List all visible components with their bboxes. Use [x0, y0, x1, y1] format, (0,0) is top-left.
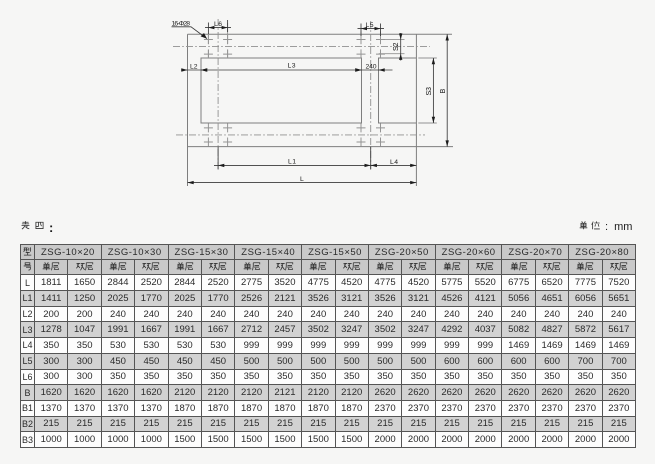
svg-text:S2: S2: [391, 43, 400, 52]
svg-text:L6: L6: [214, 21, 222, 28]
svg-text:16-Φ28: 16-Φ28: [172, 20, 191, 27]
svg-text:L3: L3: [288, 63, 296, 70]
svg-text:S3: S3: [424, 87, 433, 96]
svg-text:L1: L1: [288, 159, 296, 166]
svg-text:L5: L5: [366, 22, 374, 29]
svg-text:L4: L4: [390, 159, 398, 166]
svg-text:B: B: [438, 89, 447, 94]
svg-text:L2: L2: [190, 63, 198, 70]
svg-text:240: 240: [366, 64, 377, 71]
svg-text:L: L: [300, 176, 304, 183]
